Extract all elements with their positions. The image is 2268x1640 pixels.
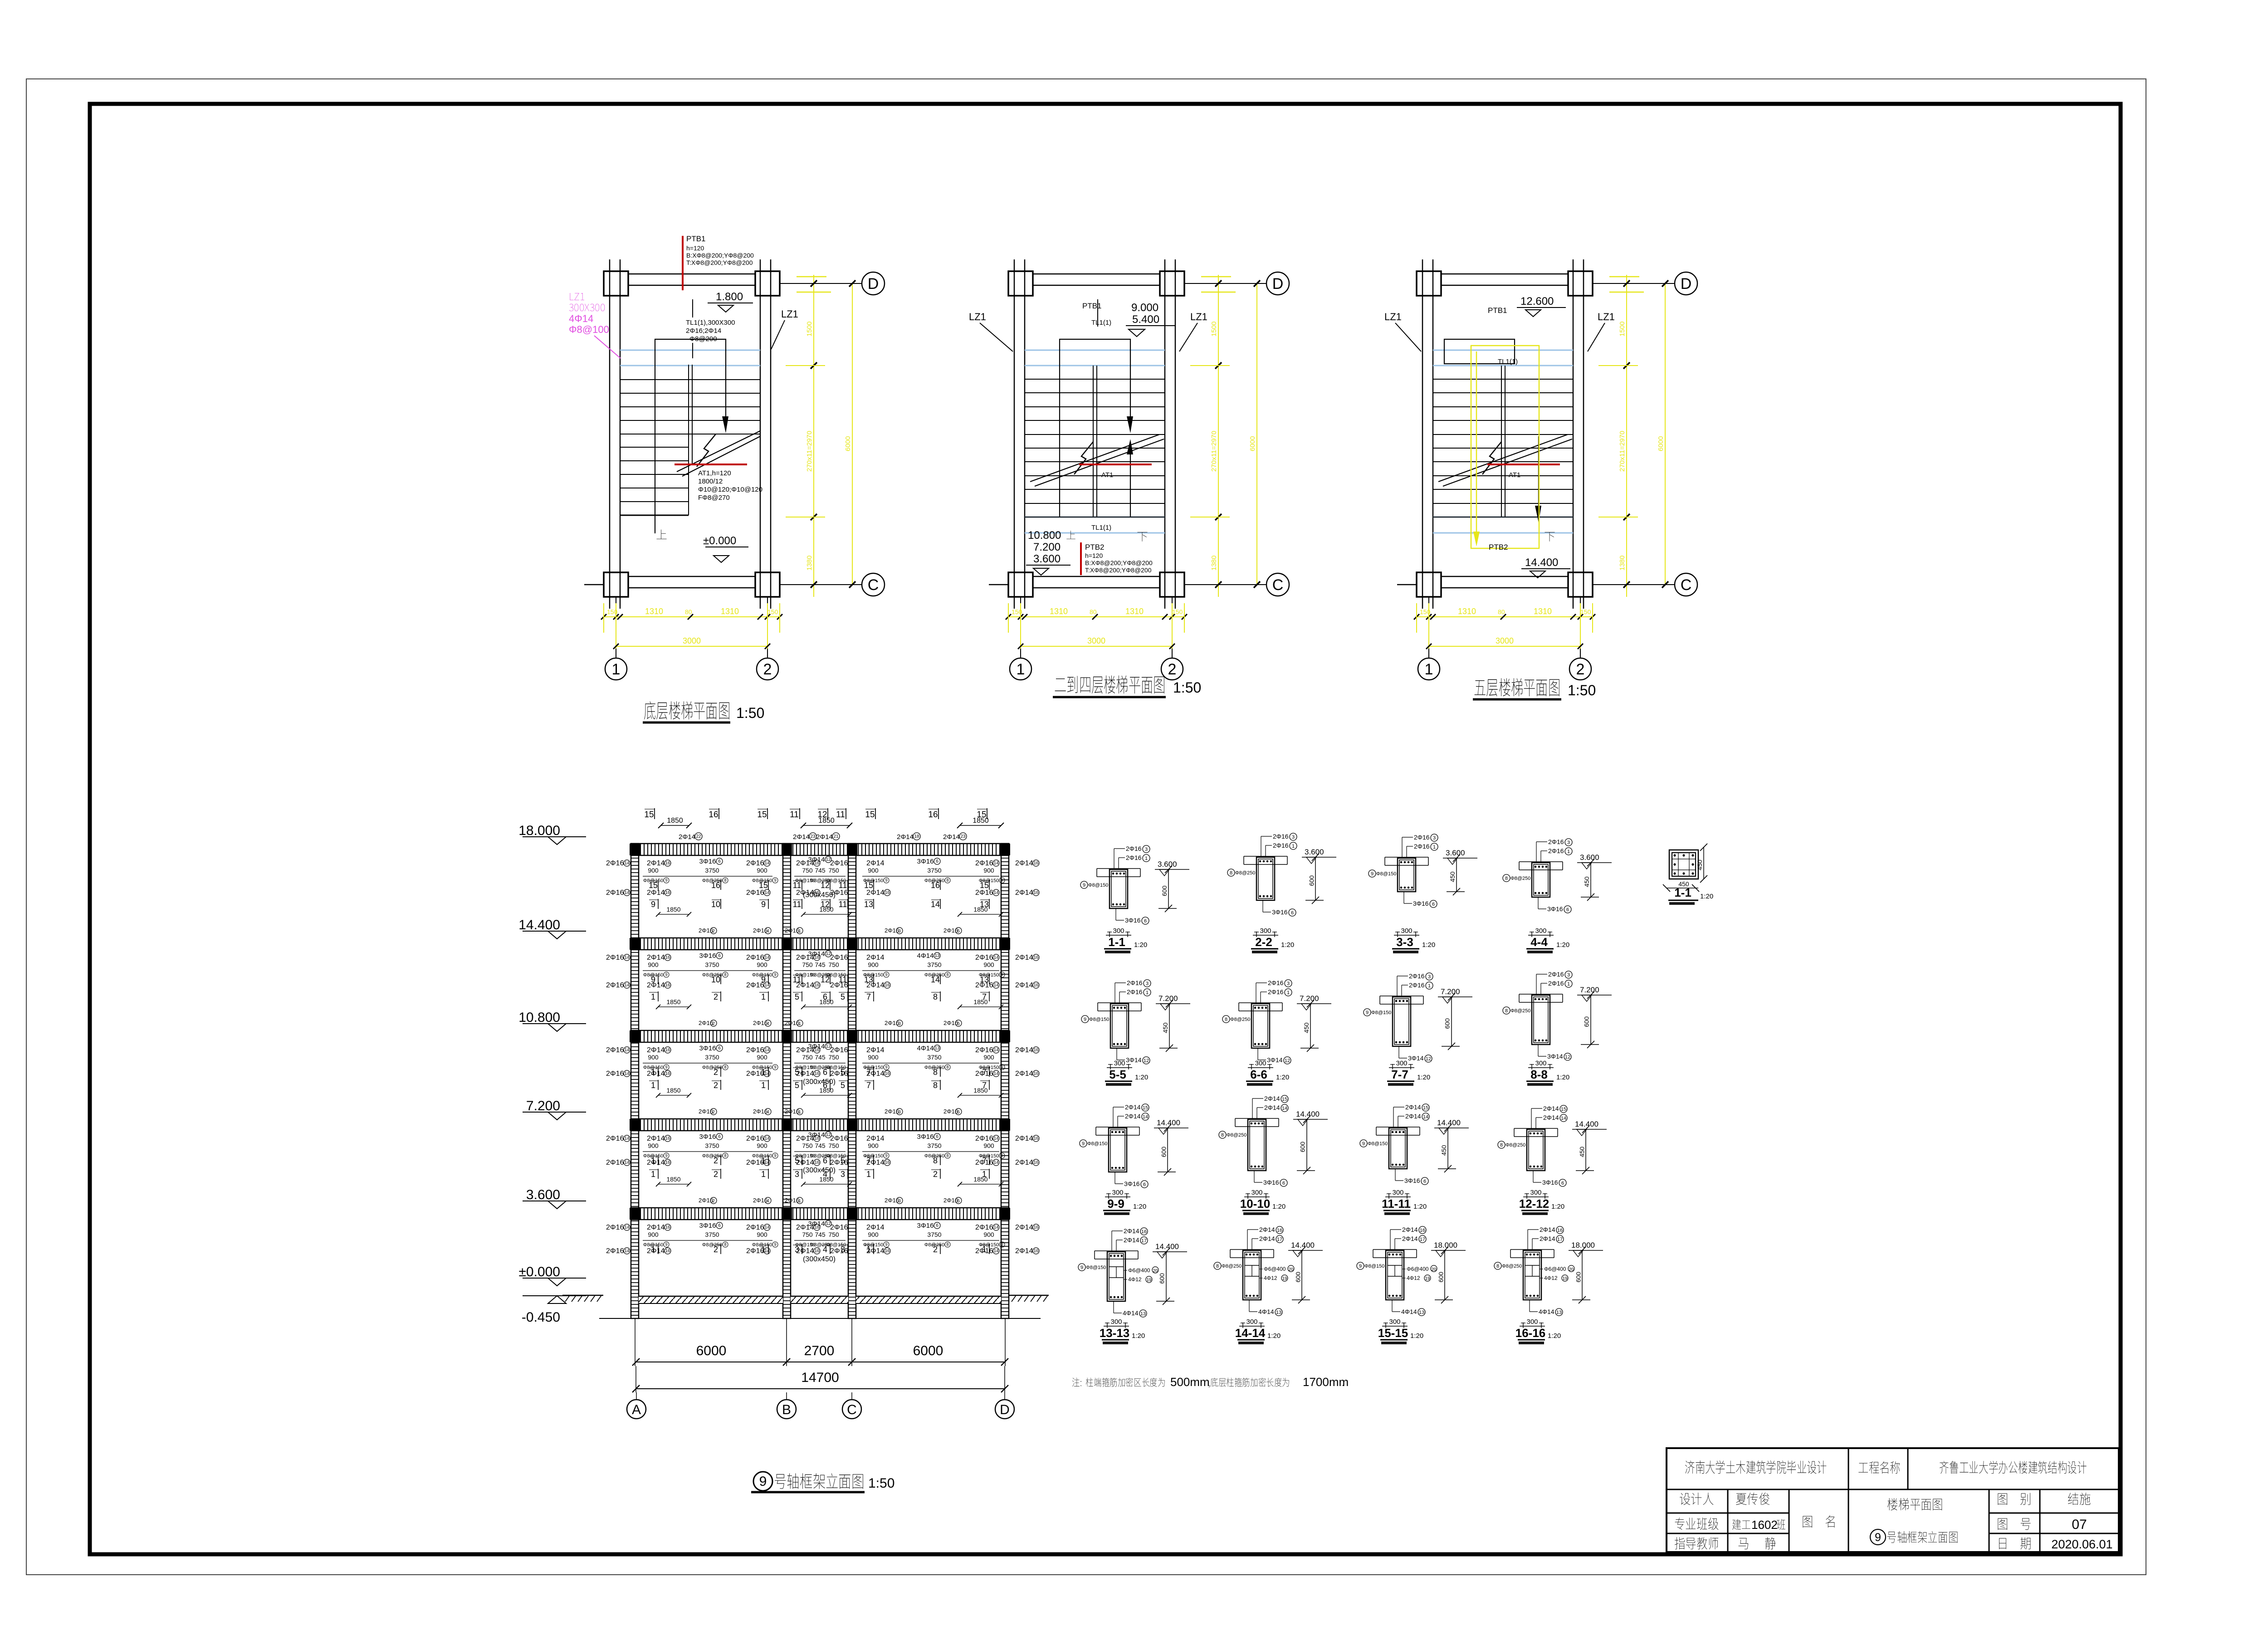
svg-text:14: 14 [624,1048,630,1053]
svg-text:745: 745 [815,867,826,874]
svg-text:14: 14 [993,1249,999,1254]
svg-text:450: 450 [1579,1147,1586,1157]
svg-text:1: 1 [798,1021,801,1026]
svg-text:19: 19 [1282,1276,1287,1281]
svg-text:7.200: 7.200 [1580,986,1599,994]
svg-text:2Φ14: 2Φ14 [866,1159,885,1167]
svg-text:PTB1: PTB1 [1488,306,1507,315]
svg-text:6: 6 [718,1223,721,1228]
svg-text:Φ8@150: Φ8@150 [1368,1141,1388,1147]
svg-text:9: 9 [774,1065,776,1069]
svg-text:6: 6 [1423,1179,1426,1184]
svg-text:7.200: 7.200 [1441,987,1460,996]
svg-text:7: 7 [866,992,871,1001]
svg-text:16: 16 [1033,861,1039,866]
svg-text:2Φ14: 2Φ14 [647,1070,665,1078]
svg-text:9: 9 [1084,1017,1086,1022]
svg-text:3Φ16: 3Φ16 [917,1133,934,1141]
svg-text:600: 600 [1437,1272,1445,1283]
svg-text:2Φ14: 2Φ14 [1543,1105,1559,1112]
svg-text:16: 16 [665,983,670,988]
svg-text:3.600: 3.600 [526,1187,560,1202]
svg-text:1850: 1850 [973,1087,987,1094]
svg-text:6000: 6000 [844,436,852,451]
svg-text:750: 750 [802,867,813,874]
svg-text:13: 13 [1419,1310,1424,1315]
svg-text:Φ8@250: Φ8@250 [1502,1264,1522,1269]
svg-text:3000: 3000 [1496,636,1514,645]
svg-text:16: 16 [1141,1229,1147,1235]
svg-text:600: 600 [1444,1018,1451,1029]
svg-text:20: 20 [1153,1269,1158,1274]
svg-text:8: 8 [1505,1008,1508,1014]
svg-text:2Φ14: 2Φ14 [1543,1114,1559,1121]
svg-text:750: 750 [828,1142,839,1149]
svg-text:7.200: 7.200 [1300,994,1319,1003]
svg-text:9: 9 [1362,1141,1365,1147]
svg-text:2Φ14: 2Φ14 [1405,1103,1421,1111]
svg-text:1:50: 1:50 [736,705,764,721]
svg-text:14: 14 [993,1048,999,1053]
svg-text:2Φ16: 2Φ16 [1548,838,1564,845]
svg-text:9: 9 [665,1065,667,1069]
svg-text:9: 9 [885,1065,887,1069]
svg-text:300: 300 [1112,1189,1123,1196]
svg-text:4Φ14: 4Φ14 [569,313,593,324]
svg-text:23: 23 [810,834,816,839]
svg-text:9: 9 [761,900,766,909]
svg-text:2Φ16: 2Φ16 [975,1159,993,1167]
svg-text:2Φ16: 2Φ16 [746,981,764,989]
svg-text:900: 900 [983,1054,994,1061]
svg-text:14: 14 [931,900,940,909]
svg-text:5: 5 [841,1081,845,1090]
svg-text:2Φ16: 2Φ16 [830,889,848,897]
svg-text:2: 2 [763,661,772,678]
svg-text:9: 9 [651,900,655,909]
svg-text:4: 4 [767,1110,769,1115]
svg-text:h=120: h=120 [686,244,704,252]
svg-text:1850: 1850 [818,817,835,825]
svg-text:1850: 1850 [819,1087,833,1094]
svg-text:2Φ14: 2Φ14 [793,833,810,841]
svg-text:16: 16 [665,955,670,960]
svg-text:Φ8@200: Φ8@200 [689,335,717,343]
svg-text:16: 16 [814,1071,820,1076]
svg-text:2Φ14: 2Φ14 [1540,1235,1555,1242]
svg-text:AT1,h=120: AT1,h=120 [698,469,731,477]
svg-text:4Φ14: 4Φ14 [1401,1308,1417,1315]
svg-text:8: 8 [724,972,726,977]
svg-text:750: 750 [802,1231,813,1238]
svg-text:6: 6 [718,1134,721,1139]
svg-text:745: 745 [815,1054,826,1061]
svg-text:2Φ16: 2Φ16 [830,859,848,867]
svg-text:3-3: 3-3 [1396,935,1413,949]
svg-text:12: 12 [821,975,830,984]
svg-text:C: C [847,1402,857,1417]
svg-text:C: C [1681,576,1692,594]
svg-text:1: 1 [1292,844,1295,849]
svg-text:1310: 1310 [1125,607,1144,616]
svg-text:2Φ14: 2Φ14 [1015,1070,1033,1078]
svg-text:8: 8 [1221,1132,1224,1138]
svg-text:2Φ16: 2Φ16 [606,1046,624,1054]
svg-text:16: 16 [1033,1249,1039,1254]
svg-text:PTB2: PTB2 [1489,543,1508,552]
svg-text:16: 16 [1033,1160,1039,1165]
svg-text:16: 16 [885,983,890,988]
svg-text:2Φ16: 2Φ16 [746,954,764,962]
svg-text:8: 8 [946,972,948,977]
svg-text:1:20: 1:20 [1551,1203,1564,1210]
svg-text:2Φ16: 2Φ16 [830,981,848,989]
svg-text:7: 7 [866,1081,871,1090]
svg-text:3: 3 [898,1110,901,1115]
svg-text:18: 18 [914,834,919,839]
svg-text:T:XΦ8@200;YΦ8@200: T:XΦ8@200;YΦ8@200 [1085,566,1152,574]
svg-text:2Φ14: 2Φ14 [1015,981,1033,989]
svg-text:3Φ14: 3Φ14 [1267,1056,1283,1064]
svg-text:Φ8@250: Φ8@250 [1222,1264,1242,1269]
svg-text:14: 14 [764,983,770,988]
svg-text:900: 900 [648,1142,659,1149]
svg-text:14: 14 [764,890,770,895]
svg-text:3Φ16: 3Φ16 [699,858,716,865]
svg-text:2Φ16: 2Φ16 [606,889,624,897]
svg-text:16: 16 [665,1136,670,1141]
svg-text:17: 17 [1420,1237,1425,1242]
svg-text:2Φ14: 2Φ14 [679,833,695,841]
svg-text:4Φ14: 4Φ14 [917,952,934,960]
svg-text:2Φ16: 2Φ16 [1126,854,1142,861]
svg-text:1310: 1310 [645,607,663,616]
svg-text:Φ8@150: Φ8@150 [1086,1265,1106,1270]
svg-text:3Φ16: 3Φ16 [699,1133,716,1141]
svg-text:14: 14 [993,983,999,988]
svg-text:2Φ14: 2Φ14 [1125,1113,1141,1120]
svg-text:TL1(1),300X300: TL1(1),300X300 [686,319,735,327]
svg-text:Φ6@400: Φ6@400 [1407,1266,1429,1272]
svg-text:3750: 3750 [927,1231,941,1238]
svg-text:16: 16 [665,1160,670,1165]
svg-text:9: 9 [1083,883,1085,888]
svg-text:2Φ14: 2Φ14 [647,859,665,867]
svg-text:900: 900 [983,1142,994,1149]
svg-text:6: 6 [1566,907,1569,913]
svg-text:3Φ16: 3Φ16 [1404,1177,1420,1184]
svg-text:16: 16 [665,1225,670,1230]
svg-text:80: 80 [685,608,692,615]
svg-text:1500: 1500 [806,322,813,337]
svg-text:2Φ16: 2Φ16 [606,1247,624,1255]
svg-text:±0.000: ±0.000 [703,535,736,547]
svg-text:Φ8@250: Φ8@250 [1505,1142,1525,1148]
svg-text:2Φ16: 2Φ16 [1126,845,1142,852]
svg-text:900: 900 [868,1054,879,1061]
svg-text:16: 16 [814,1249,820,1254]
svg-text:14: 14 [764,1225,770,1230]
svg-text:2Φ14: 2Φ14 [1124,1236,1139,1244]
svg-text:16: 16 [709,810,718,820]
svg-text:2700: 2700 [804,1343,835,1358]
svg-text:14.400: 14.400 [1291,1241,1315,1250]
svg-text:8: 8 [724,878,726,883]
svg-text:PTB1: PTB1 [686,234,706,243]
svg-text:11-11: 11-11 [1382,1197,1411,1210]
svg-text:2Φ16: 2Φ16 [1127,979,1143,986]
svg-text:1: 1 [761,992,766,1001]
svg-text:1: 1 [651,1170,655,1179]
svg-text:16: 16 [814,983,820,988]
svg-text:2Φ16: 2Φ16 [606,1224,624,1231]
svg-text:1:50: 1:50 [868,1476,894,1491]
svg-text:2Φ14: 2Φ14 [647,1135,665,1142]
svg-text:14: 14 [993,1071,999,1076]
svg-text:2: 2 [933,1170,938,1179]
svg-text:16: 16 [885,1071,890,1076]
svg-text:2-2: 2-2 [1255,935,1272,949]
svg-text:750: 750 [802,1142,813,1149]
svg-text:5.400: 5.400 [1132,313,1159,326]
svg-text:150: 150 [1012,608,1022,615]
svg-text:14: 14 [624,983,630,988]
svg-text:9: 9 [774,878,776,883]
svg-text:2Φ16: 2Φ16 [746,889,764,897]
svg-text:D: D [1681,275,1692,293]
svg-text:2Φ16: 2Φ16 [1409,981,1425,989]
svg-text:2Φ16: 2Φ16 [1548,980,1564,987]
svg-text:6: 6 [718,1046,721,1051]
svg-text:2Φ14: 2Φ14 [796,1224,814,1231]
svg-text:3Φ16: 3Φ16 [1124,1180,1140,1187]
svg-text:150: 150 [1580,608,1591,615]
svg-text:150: 150 [767,608,778,615]
svg-text:6000: 6000 [1249,436,1256,451]
svg-text:1:20: 1:20 [1410,1332,1423,1340]
svg-text:2Φ14: 2Φ14 [1015,1159,1033,1167]
svg-text:6: 6 [936,1223,938,1228]
svg-text:LZ1: LZ1 [1598,311,1615,322]
svg-text:900: 900 [648,961,659,968]
svg-text:2Φ16: 2Φ16 [606,859,624,867]
svg-text:2Φ16: 2Φ16 [606,1135,624,1142]
svg-text:1: 1 [761,1170,766,1179]
svg-text:2Φ14: 2Φ14 [796,1135,814,1142]
svg-text:Φ6@400: Φ6@400 [1544,1266,1566,1272]
svg-text:600: 600 [1160,1147,1168,1157]
svg-text:20: 20 [1431,1267,1437,1272]
svg-text:2Φ16: 2Φ16 [606,1159,624,1167]
svg-text:2Φ14: 2Φ14 [866,889,885,897]
svg-text:300: 300 [1392,1189,1403,1196]
svg-text:9.000: 9.000 [1131,302,1158,314]
svg-text:14: 14 [764,1249,770,1254]
svg-text:2Φ14: 2Φ14 [647,1159,665,1167]
svg-text:10.800: 10.800 [1028,529,1061,542]
svg-text:1: 1 [612,661,621,678]
svg-text:1850: 1850 [819,1176,833,1183]
svg-text:16: 16 [885,1249,890,1254]
svg-text:8: 8 [724,1065,726,1069]
svg-text:4Φ14: 4Φ14 [1123,1309,1139,1317]
svg-text:3: 3 [1567,840,1570,845]
svg-text:745: 745 [815,961,826,968]
svg-text:1: 1 [798,1199,801,1204]
svg-text:16: 16 [814,1160,820,1165]
svg-text:13-13: 13-13 [1100,1326,1130,1340]
svg-text:15: 15 [757,810,767,820]
svg-text:6: 6 [823,1068,827,1077]
svg-text:3: 3 [898,1021,901,1026]
svg-text:15: 15 [980,881,989,890]
svg-text:Φ8@150: Φ8@150 [1087,1141,1107,1147]
svg-text:13: 13 [1276,1310,1281,1315]
svg-text:3Φ16: 3Φ16 [1125,917,1141,924]
svg-text:6: 6 [1561,1181,1564,1186]
svg-text:3: 3 [795,1170,799,1179]
svg-text:16: 16 [814,1048,820,1053]
svg-text:2Φ14: 2Φ14 [866,1046,885,1054]
svg-text:2Φ14: 2Φ14 [866,954,885,962]
svg-text:6: 6 [1144,918,1147,924]
svg-text:TL1(1): TL1(1) [1091,319,1111,327]
svg-text:14: 14 [1282,1106,1287,1111]
svg-text:2Φ16: 2Φ16 [975,859,993,867]
svg-text:900: 900 [983,1231,994,1238]
svg-text:2Φ14: 2Φ14 [1402,1235,1418,1242]
svg-text:14.400: 14.400 [518,918,560,932]
svg-text:(300x450): (300x450) [803,1255,836,1263]
svg-text:1:20: 1:20 [1548,1332,1561,1340]
svg-text:3: 3 [898,929,901,934]
svg-text:1850: 1850 [973,906,987,913]
svg-text:8: 8 [946,878,948,883]
svg-text:13: 13 [1556,1310,1562,1315]
svg-text:5: 5 [795,992,799,1001]
svg-text:16: 16 [1033,1136,1039,1141]
svg-text:17: 17 [1277,1237,1282,1242]
svg-text:16: 16 [1420,1228,1425,1233]
svg-text:9: 9 [665,972,667,977]
svg-text:21: 21 [833,834,839,839]
svg-text:2: 2 [1576,661,1585,678]
svg-text:23: 23 [960,834,966,839]
svg-text:2Φ14: 2Φ14 [1015,1247,1033,1255]
svg-text:1380: 1380 [1618,556,1626,571]
svg-text:8-8: 8-8 [1530,1068,1548,1081]
svg-text:3: 3 [841,1170,845,1179]
svg-text:1850: 1850 [666,1176,680,1183]
svg-text:3750: 3750 [927,1142,941,1149]
svg-text:2Φ16: 2Φ16 [1548,971,1564,978]
svg-text:13: 13 [864,900,873,909]
svg-text:2Φ16: 2Φ16 [1414,843,1430,850]
svg-text:900: 900 [648,867,659,874]
svg-text:10-10: 10-10 [1240,1197,1271,1210]
svg-text:FΦ8@270: FΦ8@270 [698,494,730,502]
svg-text:4Φ12: 4Φ12 [1264,1275,1277,1281]
svg-text:18.000: 18.000 [1434,1241,1457,1250]
svg-text:900: 900 [757,867,767,874]
svg-text:2Φ16: 2Φ16 [975,1046,993,1054]
svg-text:AT1: AT1 [1101,471,1113,479]
svg-text:8: 8 [1505,876,1508,881]
svg-text:270x11=2970: 270x11=2970 [1618,431,1626,472]
svg-text:Φ8@250: Φ8@250 [1230,1017,1250,1022]
svg-text:14: 14 [624,1249,630,1254]
svg-text:15-15: 15-15 [1378,1326,1408,1340]
svg-text:TL1(1): TL1(1) [1091,524,1111,532]
svg-text:3750: 3750 [705,867,719,874]
svg-text:2: 2 [714,1170,718,1179]
svg-text:20: 20 [1288,1267,1294,1272]
svg-text:450: 450 [1303,1022,1310,1033]
svg-text:9: 9 [1371,871,1374,877]
svg-text:2Φ16: 2Φ16 [830,1046,848,1054]
svg-text:2Φ14: 2Φ14 [1264,1104,1280,1111]
svg-text:9: 9 [1001,878,1003,883]
svg-text:14: 14 [764,861,770,866]
svg-text:9: 9 [885,972,887,977]
svg-text:2Φ14: 2Φ14 [943,833,960,841]
svg-text:4: 4 [823,1245,827,1254]
svg-text:18.000: 18.000 [1571,1241,1595,1250]
svg-text:2Φ14: 2Φ14 [816,833,833,841]
svg-text:6000: 6000 [696,1343,727,1358]
svg-text:1: 1 [1433,844,1436,850]
svg-text:LZ1: LZ1 [969,311,986,322]
svg-text:150: 150 [607,608,618,615]
svg-text:B:XΦ8@200;YΦ8@200: B:XΦ8@200;YΦ8@200 [686,252,754,259]
svg-text:2Φ14: 2Φ14 [647,981,665,989]
svg-text:5: 5 [957,1021,960,1026]
svg-text:900: 900 [868,867,879,874]
svg-text:600: 600 [1295,1272,1302,1283]
svg-text:8: 8 [1496,1264,1499,1269]
svg-text:750: 750 [802,1054,813,1061]
svg-text:4Φ14: 4Φ14 [917,1045,934,1052]
svg-text:900: 900 [983,867,994,874]
svg-text:8: 8 [724,1153,726,1158]
svg-text:20: 20 [1569,1267,1574,1272]
svg-text:1850: 1850 [819,998,833,1005]
svg-text:15: 15 [864,881,873,890]
svg-text:3Φ14: 3Φ14 [1547,1053,1563,1060]
svg-text:600: 600 [1308,875,1315,886]
svg-text:h=120: h=120 [1085,552,1103,559]
svg-text:2Φ16: 2Φ16 [830,1159,848,1167]
svg-text:1310: 1310 [721,607,739,616]
svg-text:Φ8@150: Φ8@150 [1371,1010,1391,1015]
svg-text:16-16: 16-16 [1515,1326,1546,1340]
svg-text:15: 15 [644,810,654,820]
svg-text:6: 6 [718,859,721,864]
svg-text:5-5: 5-5 [1109,1068,1126,1081]
svg-text:14: 14 [764,1136,770,1141]
svg-text:16: 16 [1033,983,1039,988]
svg-text:16: 16 [665,1048,670,1053]
svg-text:1602: 1602 [1751,1518,1778,1532]
svg-text:1500: 1500 [1618,322,1626,337]
svg-text:14: 14 [624,1071,630,1076]
svg-text:2Φ14: 2Φ14 [1015,1046,1033,1054]
svg-text:450: 450 [1162,1022,1169,1033]
svg-text:1: 1 [761,1081,766,1090]
svg-text:16: 16 [931,881,940,890]
svg-text:16: 16 [885,1160,890,1165]
svg-text:2Φ14: 2Φ14 [1402,1226,1418,1233]
